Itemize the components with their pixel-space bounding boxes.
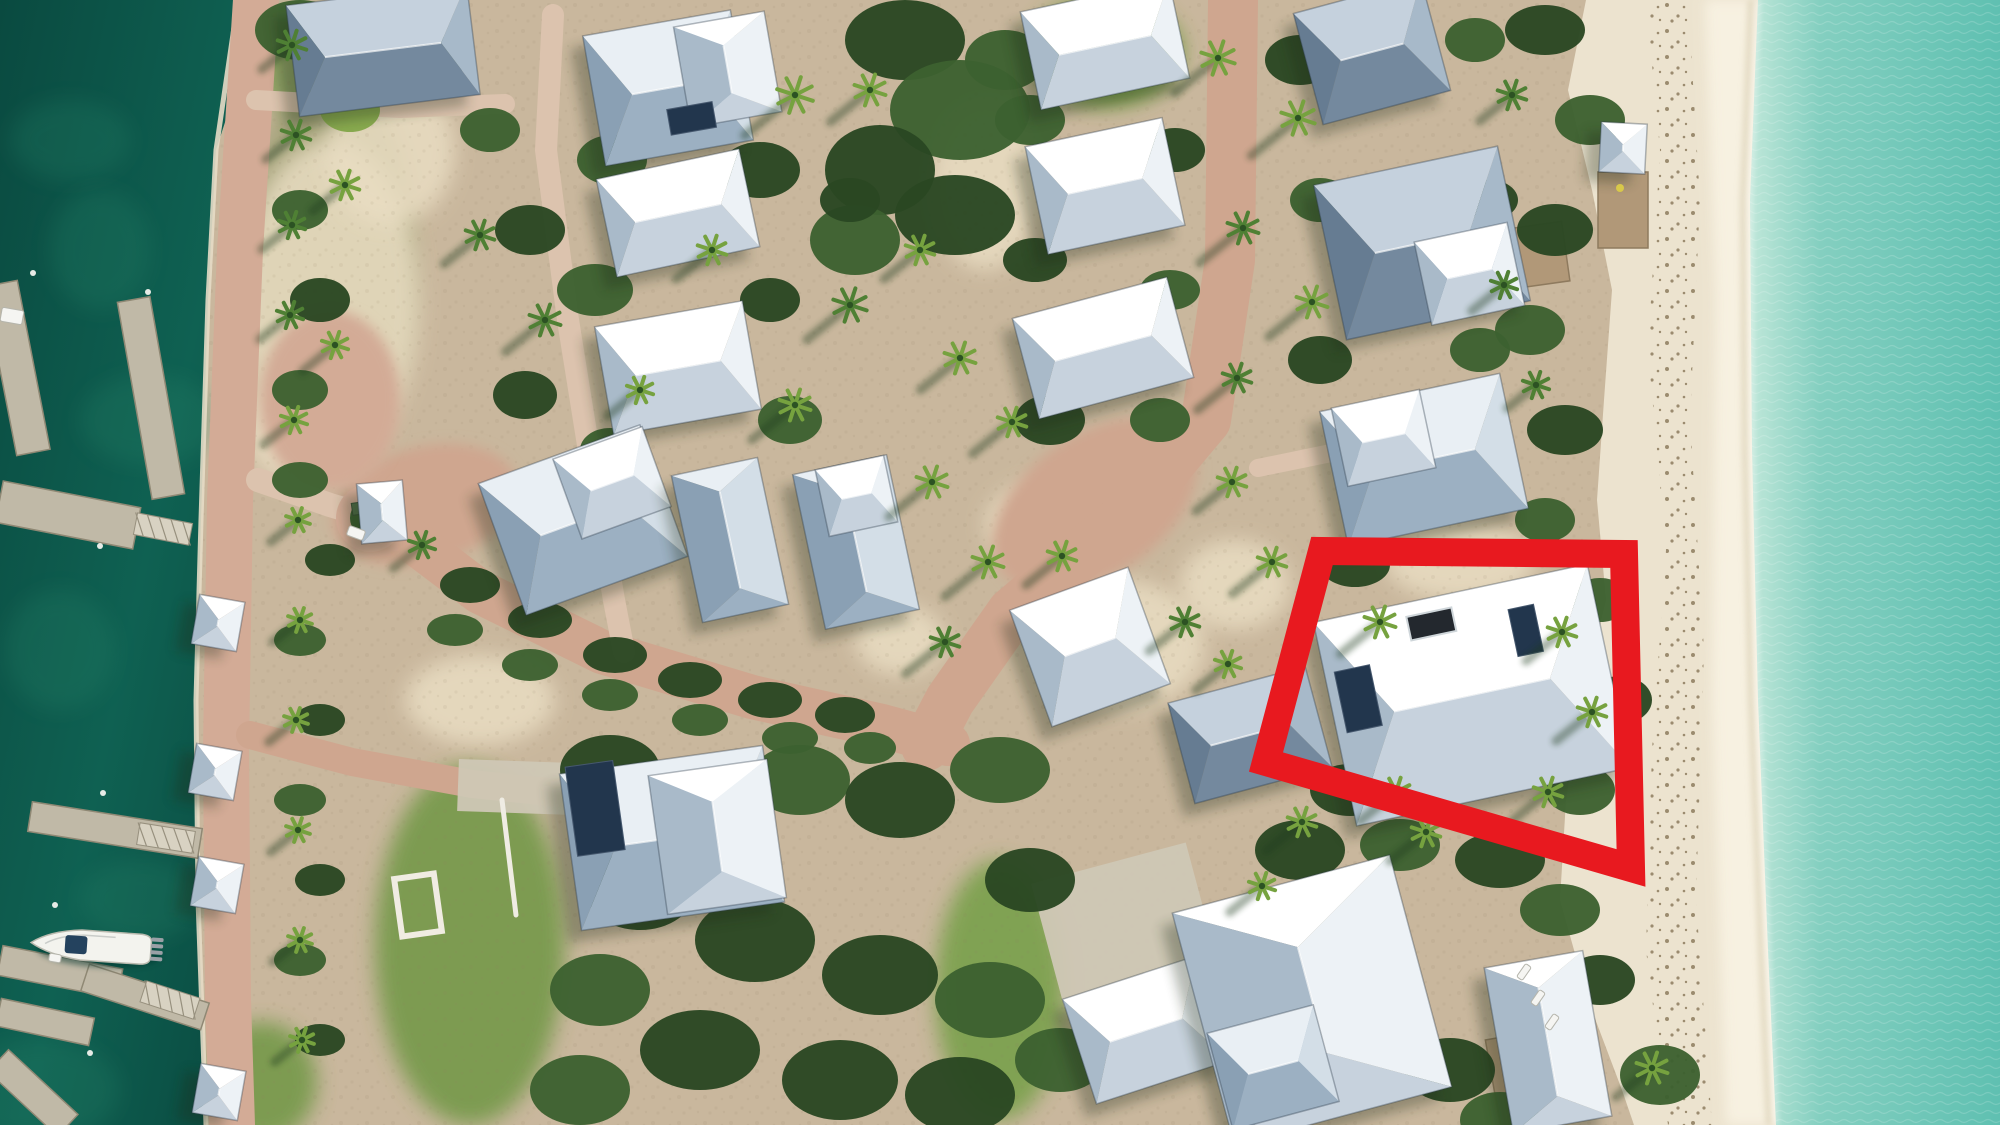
aerial-photograph: Top-down aerial photo of a beachfront is… — [0, 0, 2000, 1125]
marina-pavilion — [175, 592, 245, 662]
house-roof — [545, 739, 789, 942]
aerial-photo-canvas — [0, 0, 2000, 1125]
ocean — [1743, 0, 2000, 1125]
wooden-deck — [1598, 172, 1648, 248]
outboard-engine — [151, 937, 163, 942]
boat-canopy — [64, 935, 87, 954]
outboard-engine — [150, 957, 162, 962]
outboard-engine — [151, 950, 163, 955]
beach-umbrella — [1616, 184, 1624, 192]
white-item — [48, 953, 61, 963]
outboard-engine — [151, 944, 163, 949]
marina-pavilion — [172, 741, 242, 811]
marina-pavilion — [174, 854, 244, 924]
